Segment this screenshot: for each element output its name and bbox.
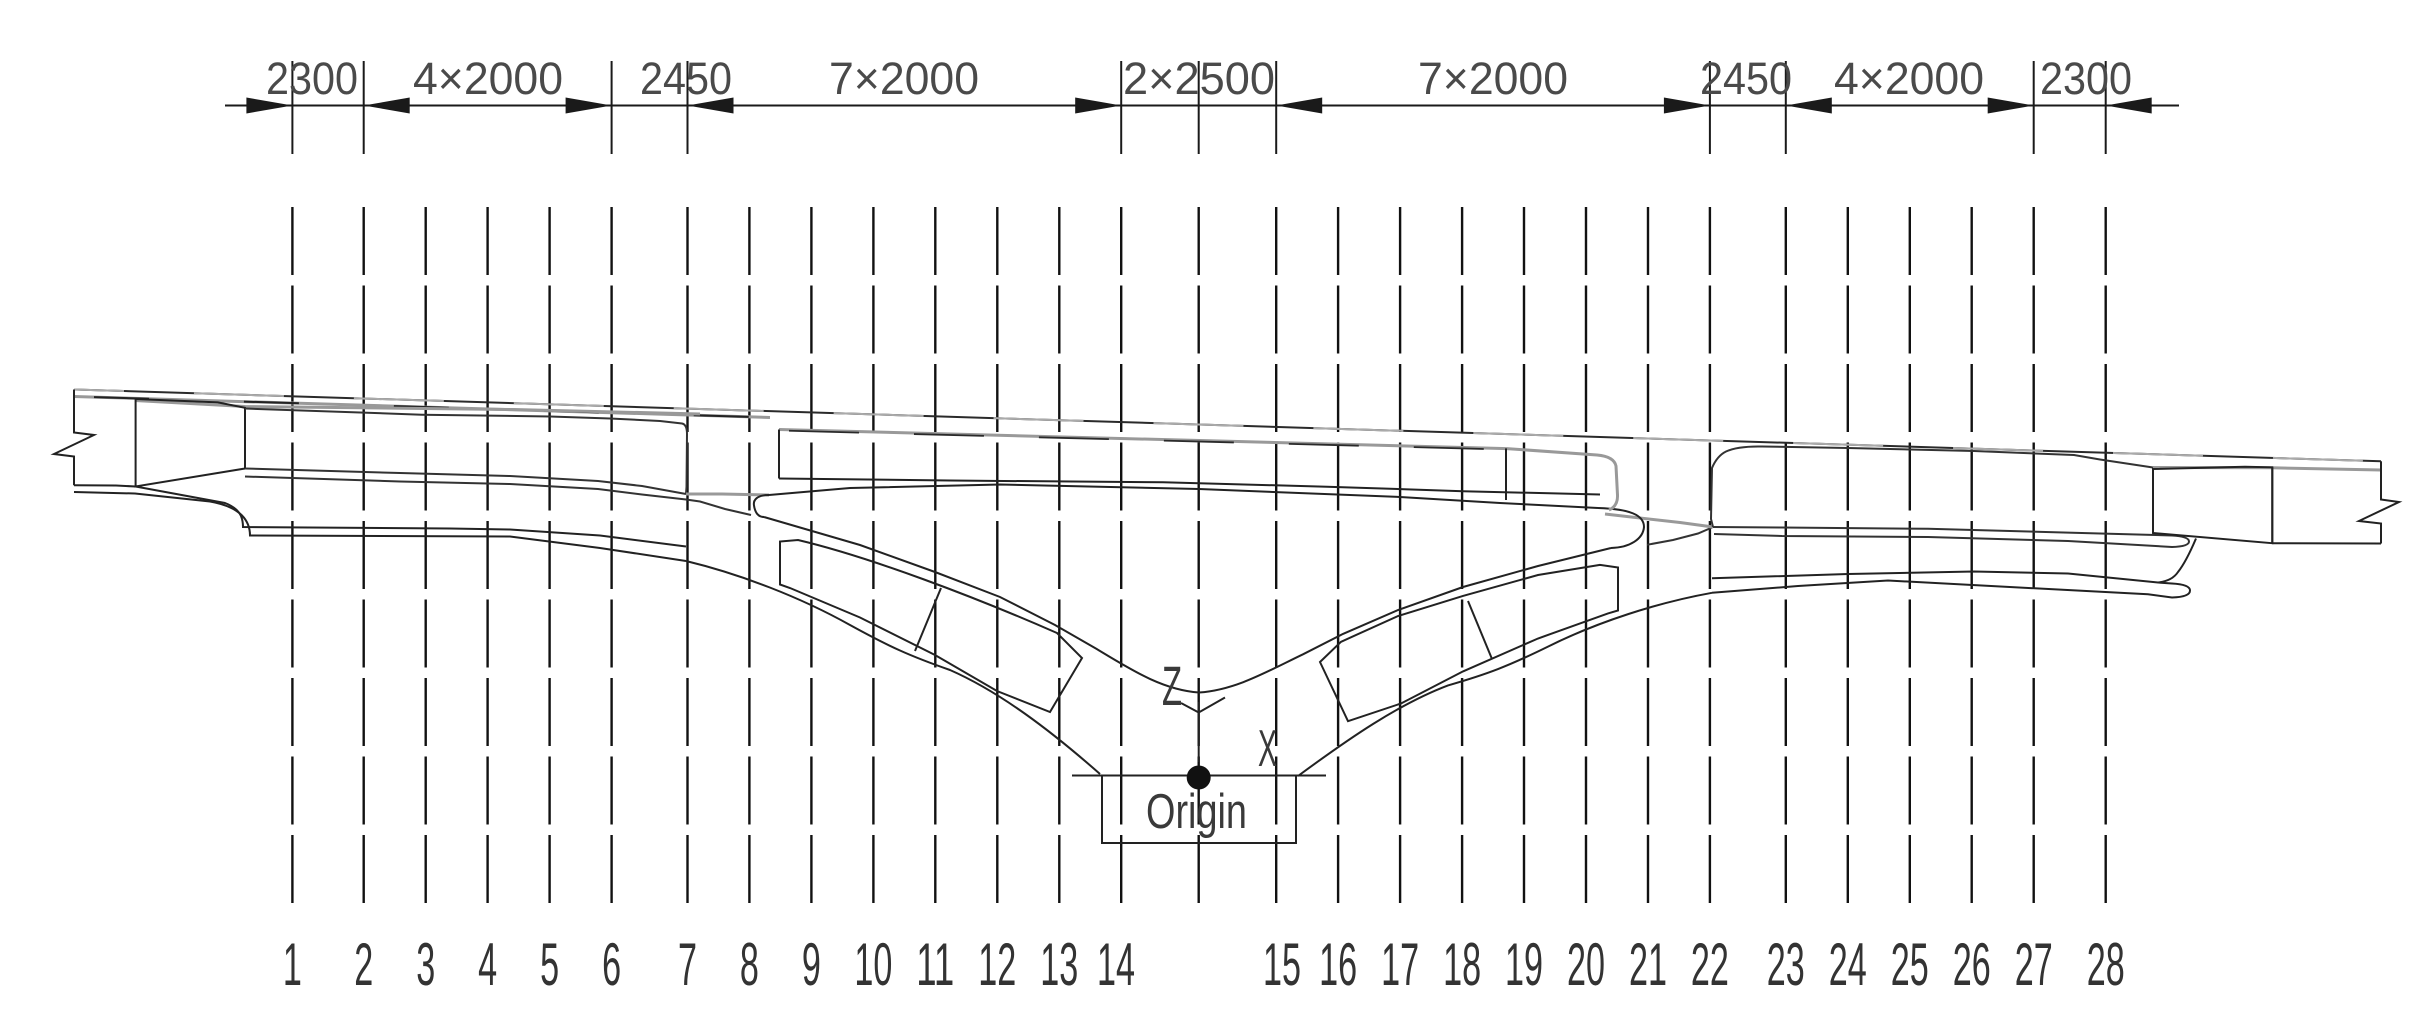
svg-text:X: X <box>1258 720 1277 778</box>
svg-text:24: 24 <box>1829 931 1867 998</box>
svg-text:25: 25 <box>1891 931 1929 998</box>
svg-text:13: 13 <box>1040 931 1078 998</box>
svg-text:19: 19 <box>1505 931 1543 998</box>
svg-text:18: 18 <box>1443 931 1481 998</box>
svg-text:15: 15 <box>1263 931 1301 998</box>
svg-text:28: 28 <box>2087 931 2125 998</box>
svg-text:7×2000: 7×2000 <box>829 53 979 104</box>
svg-text:4×2000: 4×2000 <box>1834 53 1984 104</box>
svg-text:21: 21 <box>1629 931 1667 998</box>
svg-text:22: 22 <box>1691 931 1729 998</box>
svg-text:5: 5 <box>540 931 559 998</box>
svg-text:2×2500: 2×2500 <box>1123 53 1275 104</box>
svg-text:16: 16 <box>1319 931 1357 998</box>
svg-text:12: 12 <box>978 931 1016 998</box>
svg-text:20: 20 <box>1567 931 1605 998</box>
svg-text:3: 3 <box>416 931 435 998</box>
svg-text:17: 17 <box>1381 931 1419 998</box>
svg-text:27: 27 <box>2015 931 2053 998</box>
svg-text:2450: 2450 <box>640 53 732 104</box>
svg-text:7×2000: 7×2000 <box>1418 53 1568 104</box>
svg-text:26: 26 <box>1953 931 1991 998</box>
svg-text:11: 11 <box>916 931 954 998</box>
svg-text:4: 4 <box>478 931 497 998</box>
svg-text:9: 9 <box>802 931 821 998</box>
svg-text:1: 1 <box>283 931 302 998</box>
svg-text:14: 14 <box>1097 931 1135 998</box>
svg-text:2: 2 <box>354 931 373 998</box>
svg-text:2300: 2300 <box>266 53 358 104</box>
svg-text:8: 8 <box>740 931 759 998</box>
svg-text:4×2000: 4×2000 <box>413 53 563 104</box>
svg-text:10: 10 <box>854 931 892 998</box>
svg-text:Origin: Origin <box>1146 785 1247 839</box>
svg-text:6: 6 <box>602 931 621 998</box>
svg-text:Z: Z <box>1162 654 1182 717</box>
svg-text:2450: 2450 <box>1700 53 1792 104</box>
svg-text:23: 23 <box>1767 931 1805 998</box>
svg-text:2300: 2300 <box>2040 53 2132 104</box>
svg-text:7: 7 <box>678 931 697 998</box>
